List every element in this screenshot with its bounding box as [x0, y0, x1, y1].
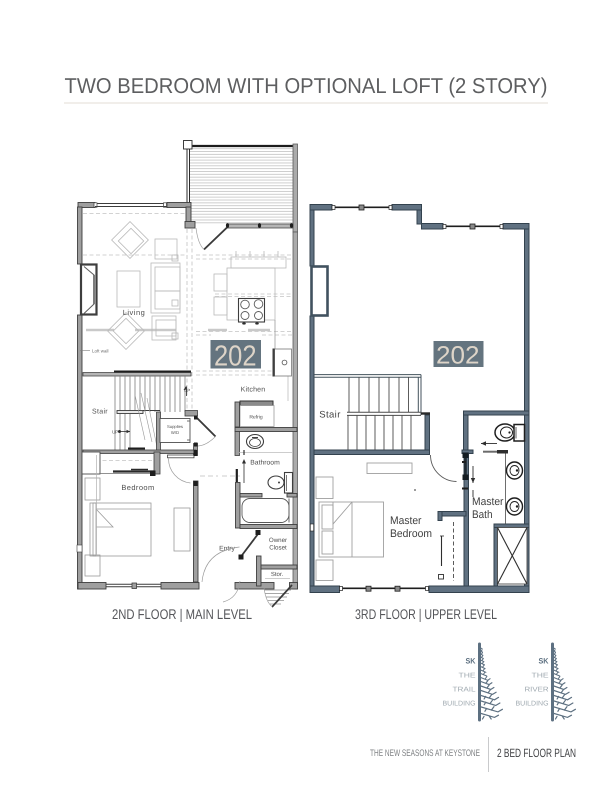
svg-text:3RD FLOOR | UPPER LEVEL: 3RD FLOOR | UPPER LEVEL: [355, 606, 497, 622]
svg-text:Living: Living: [123, 308, 146, 317]
svg-text:Entry: Entry: [219, 546, 235, 553]
svg-text:Master: Master: [390, 515, 422, 527]
svg-text:SK: SK: [466, 657, 476, 666]
svg-text:Stair: Stair: [92, 408, 108, 416]
svg-text:W/D: W/D: [171, 430, 179, 435]
svg-text:Bedroom: Bedroom: [390, 528, 432, 540]
svg-text:Stair: Stair: [319, 410, 341, 421]
svg-text:Kitchen: Kitchen: [241, 386, 266, 394]
svg-text:THE: THE: [459, 673, 476, 680]
svg-text:SK: SK: [539, 657, 549, 666]
svg-text:Bathroom: Bathroom: [250, 460, 280, 467]
svg-text:Owner: Owner: [269, 537, 287, 544]
svg-text:2ND FLOOR | MAIN LEVEL: 2ND FLOOR | MAIN LEVEL: [112, 606, 252, 622]
svg-text:Bath: Bath: [472, 509, 493, 521]
svg-text:THE NEW SEASONS AT KEYSTONE: THE NEW SEASONS AT KEYSTONE: [370, 748, 480, 759]
svg-text:THE: THE: [532, 673, 549, 680]
svg-text:BUILDING: BUILDING: [443, 701, 476, 708]
svg-text:202: 202: [214, 340, 257, 372]
svg-text:RIVER: RIVER: [525, 687, 549, 694]
svg-text:Master: Master: [472, 496, 504, 508]
svg-text:BUILDING: BUILDING: [516, 701, 549, 708]
svg-text:Refrig: Refrig: [249, 415, 263, 421]
svg-text:Stor.: Stor.: [271, 571, 284, 578]
svg-text:Loft wall: Loft wall: [92, 349, 109, 354]
svg-text:UP: UP: [112, 430, 118, 435]
svg-text:Bedroom: Bedroom: [121, 483, 154, 492]
svg-text:202: 202: [436, 342, 480, 370]
svg-text:2 BED FLOOR PLAN: 2 BED FLOOR PLAN: [497, 746, 576, 760]
svg-text:Supplies: Supplies: [167, 424, 183, 429]
svg-text:TRAIL: TRAIL: [453, 687, 476, 694]
svg-text:Closet: Closet: [269, 545, 287, 552]
svg-text:TWO BEDROOM WITH OPTIONAL LOFT: TWO BEDROOM WITH OPTIONAL LOFT (2 STORY): [65, 74, 548, 98]
